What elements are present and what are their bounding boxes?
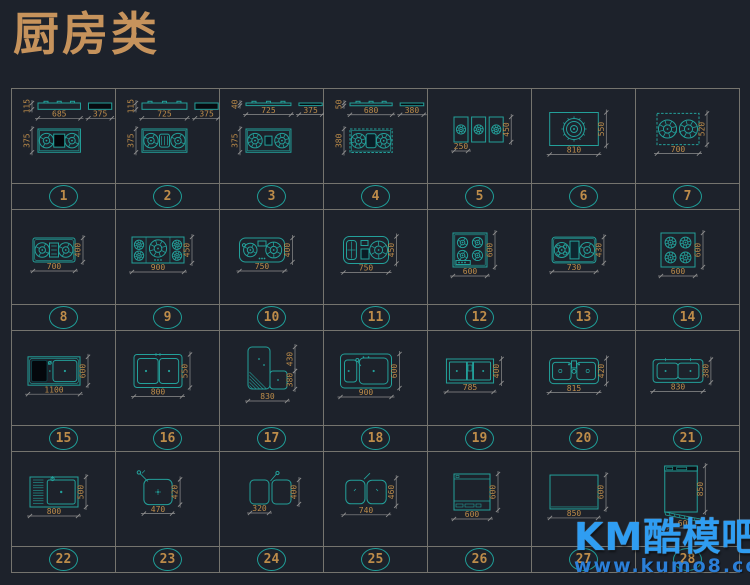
- number-strip: 15: [12, 425, 115, 451]
- svg-text:750: 750: [255, 262, 270, 271]
- svg-text:320: 320: [252, 504, 267, 513]
- catalog-cell-4: 506803803804: [324, 89, 428, 210]
- svg-text:800: 800: [151, 388, 166, 397]
- catalog-cell-11: 75045011: [324, 210, 428, 331]
- svg-text:550: 550: [181, 364, 190, 379]
- item-number-badge: 28: [673, 548, 702, 571]
- fixture-drawing-26: 600600: [428, 452, 532, 546]
- catalog-cell-20: 81542020: [532, 331, 636, 452]
- number-strip: 4: [324, 183, 427, 209]
- svg-text:600: 600: [79, 364, 88, 379]
- fixture-drawing-16: 800550: [116, 331, 220, 425]
- number-strip: 14: [636, 304, 739, 330]
- svg-text:380: 380: [405, 106, 420, 115]
- item-number-badge: 18: [361, 427, 390, 450]
- svg-text:725: 725: [157, 110, 172, 119]
- number-strip: 10: [220, 304, 323, 330]
- catalog-cell-16: 80055016: [116, 331, 220, 452]
- catalog-cell-14: 60060014: [636, 210, 740, 331]
- catalog-cell-23: 47042023: [116, 452, 220, 573]
- svg-text:400: 400: [492, 364, 501, 379]
- number-strip: 5: [428, 183, 531, 209]
- item-number-badge: 7: [673, 185, 702, 208]
- svg-text:750: 750: [359, 264, 374, 273]
- fixture-drawing-11: 750450: [324, 210, 428, 304]
- svg-text:700: 700: [671, 145, 686, 154]
- fixture-drawing-5: 250450: [428, 89, 532, 183]
- svg-text:740: 740: [359, 506, 374, 515]
- catalog-cell-12: 60060012: [428, 210, 532, 331]
- item-number-badge: 11: [361, 306, 390, 329]
- svg-text:830: 830: [671, 383, 686, 392]
- svg-text:550: 550: [597, 122, 606, 137]
- fixture-drawing-7: 700520: [636, 89, 740, 183]
- svg-text:450: 450: [502, 122, 511, 137]
- number-strip: 11: [324, 304, 427, 330]
- number-strip: 21: [636, 425, 739, 451]
- catalog-cell-5: 2504505: [428, 89, 532, 210]
- item-number-badge: 17: [257, 427, 286, 450]
- fixture-drawing-17: 830430380: [220, 331, 324, 425]
- number-strip: 8: [12, 304, 115, 330]
- number-strip: 1: [12, 183, 115, 209]
- fixture-drawing-28: 850600: [636, 452, 740, 546]
- number-strip: 20: [532, 425, 635, 451]
- catalog-cell-6: 8105506: [532, 89, 636, 210]
- fixture-drawing-13: 730430: [532, 210, 636, 304]
- fixture-drawing-10: 750400: [220, 210, 324, 304]
- svg-text:600: 600: [390, 364, 399, 379]
- item-number-badge: 16: [153, 427, 182, 450]
- svg-text:450: 450: [183, 243, 192, 258]
- svg-text:600: 600: [671, 267, 686, 276]
- catalog-cell-15: 110060015: [12, 331, 116, 452]
- catalog-cell-10: 75040010: [220, 210, 324, 331]
- svg-text:430: 430: [286, 352, 295, 367]
- svg-text:40: 40: [231, 99, 240, 109]
- svg-text:785: 785: [463, 383, 478, 392]
- svg-text:520: 520: [698, 122, 707, 137]
- number-strip: 18: [324, 425, 427, 451]
- svg-text:725: 725: [261, 106, 276, 115]
- svg-text:375: 375: [199, 110, 214, 119]
- svg-text:50: 50: [335, 99, 344, 109]
- item-number-badge: 8: [49, 306, 78, 329]
- number-strip: 2: [116, 183, 219, 209]
- number-strip: 28: [636, 546, 739, 572]
- item-number-badge: 26: [465, 548, 494, 571]
- svg-text:115: 115: [23, 99, 32, 114]
- item-number-badge: 23: [153, 548, 182, 571]
- fixture-drawing-18: 900600: [324, 331, 428, 425]
- fixture-drawing-24: 320400: [220, 452, 324, 546]
- fixture-drawing-27: 850600: [532, 452, 636, 546]
- catalog-cell-28: 85060028: [636, 452, 740, 573]
- svg-text:680: 680: [364, 106, 379, 115]
- number-strip: 16: [116, 425, 219, 451]
- fixture-drawing-21: 830380: [636, 331, 740, 425]
- svg-text:380: 380: [335, 133, 344, 148]
- svg-text:470: 470: [151, 505, 166, 514]
- catalog-cell-2: 1157253753752: [116, 89, 220, 210]
- svg-text:600: 600: [463, 267, 478, 276]
- svg-text:850: 850: [696, 482, 705, 497]
- fixture-drawing-19: 785400: [428, 331, 532, 425]
- number-strip: 23: [116, 546, 219, 572]
- svg-text:700: 700: [47, 262, 62, 271]
- catalog-cell-22: 80050022: [12, 452, 116, 573]
- number-strip: 17: [220, 425, 323, 451]
- fixture-drawing-23: 470420: [116, 452, 220, 546]
- number-strip: 22: [12, 546, 115, 572]
- fixture-drawing-20: 815420: [532, 331, 636, 425]
- svg-text:600: 600: [489, 485, 498, 500]
- catalog-grid: 1156853753751115725375375240725375375350…: [11, 88, 740, 573]
- svg-text:450: 450: [387, 243, 396, 258]
- svg-text:420: 420: [597, 364, 606, 379]
- fixture-drawing-1: 115685375375: [12, 89, 116, 183]
- svg-text:830: 830: [260, 392, 275, 401]
- item-number-badge: 1: [49, 185, 78, 208]
- number-strip: 9: [116, 304, 219, 330]
- svg-text:600: 600: [465, 510, 480, 519]
- svg-text:400: 400: [290, 485, 299, 500]
- fixture-drawing-14: 600600: [636, 210, 740, 304]
- item-number-badge: 19: [465, 427, 494, 450]
- number-strip: 24: [220, 546, 323, 572]
- item-number-badge: 5: [465, 185, 494, 208]
- svg-text:900: 900: [359, 388, 374, 397]
- catalog-cell-24: 32040024: [220, 452, 324, 573]
- fixture-drawing-22: 800500: [12, 452, 116, 546]
- catalog-cell-21: 83038021: [636, 331, 740, 452]
- item-number-badge: 15: [49, 427, 78, 450]
- catalog-cell-25: 74046025: [324, 452, 428, 573]
- fixture-drawing-4: 50680380380: [324, 89, 428, 183]
- item-number-badge: 27: [569, 548, 598, 571]
- catalog-cell-13: 73043013: [532, 210, 636, 331]
- number-strip: 26: [428, 546, 531, 572]
- item-number-badge: 10: [257, 306, 286, 329]
- svg-text:250: 250: [454, 142, 469, 151]
- item-number-badge: 14: [673, 306, 702, 329]
- fixture-drawing-12: 600600: [428, 210, 532, 304]
- svg-text:380: 380: [286, 373, 295, 388]
- svg-text:1100: 1100: [44, 385, 63, 394]
- svg-text:375: 375: [23, 133, 32, 148]
- catalog-cell-9: 9004509: [116, 210, 220, 331]
- catalog-cell-7: 7005207: [636, 89, 740, 210]
- catalog-cell-26: 60060026: [428, 452, 532, 573]
- catalog-cell-19: 78540019: [428, 331, 532, 452]
- svg-text:600: 600: [486, 243, 495, 258]
- number-strip: 6: [532, 183, 635, 209]
- fixture-drawing-15: 1100600: [12, 331, 116, 425]
- svg-text:815: 815: [567, 384, 582, 393]
- svg-text:375: 375: [127, 133, 136, 148]
- svg-text:800: 800: [47, 507, 62, 516]
- item-number-badge: 4: [361, 185, 390, 208]
- svg-text:375: 375: [93, 110, 108, 119]
- item-number-badge: 6: [569, 185, 598, 208]
- catalog-cell-17: 83043038017: [220, 331, 324, 452]
- item-number-badge: 22: [49, 548, 78, 571]
- svg-text:375: 375: [231, 133, 240, 148]
- item-number-badge: 2: [153, 185, 182, 208]
- svg-text:400: 400: [74, 243, 83, 258]
- number-strip: 13: [532, 304, 635, 330]
- number-strip: 7: [636, 183, 739, 209]
- fixture-drawing-25: 740460: [324, 452, 428, 546]
- cad-sheet: 厨房类 115685375375111572537537524072537537…: [0, 0, 750, 585]
- item-number-badge: 25: [361, 548, 390, 571]
- svg-text:600: 600: [597, 485, 606, 500]
- svg-text:850: 850: [567, 509, 582, 518]
- item-number-badge: 20: [569, 427, 598, 450]
- page-title: 厨房类: [13, 0, 160, 69]
- catalog-cell-27: 85060027: [532, 452, 636, 573]
- svg-text:810: 810: [567, 146, 582, 155]
- svg-text:600: 600: [678, 519, 693, 528]
- item-number-badge: 24: [257, 548, 286, 571]
- item-number-badge: 3: [257, 185, 286, 208]
- catalog-cell-1: 1156853753751: [12, 89, 116, 210]
- item-number-badge: 13: [569, 306, 598, 329]
- item-number-badge: 21: [673, 427, 702, 450]
- svg-text:500: 500: [77, 485, 86, 500]
- svg-text:900: 900: [151, 263, 166, 272]
- item-number-badge: 12: [465, 306, 494, 329]
- svg-text:430: 430: [595, 243, 604, 258]
- fixture-drawing-2: 115725375375: [116, 89, 220, 183]
- svg-text:375: 375: [303, 106, 318, 115]
- svg-text:460: 460: [387, 485, 396, 500]
- fixture-drawing-8: 700400: [12, 210, 116, 304]
- number-strip: 3: [220, 183, 323, 209]
- svg-text:400: 400: [283, 243, 292, 258]
- catalog-cell-8: 7004008: [12, 210, 116, 331]
- svg-text:420: 420: [171, 485, 180, 500]
- svg-text:380: 380: [702, 364, 711, 379]
- catalog-cell-3: 407253753753: [220, 89, 324, 210]
- number-strip: 19: [428, 425, 531, 451]
- svg-text:115: 115: [127, 99, 136, 114]
- number-strip: 25: [324, 546, 427, 572]
- svg-text:730: 730: [567, 263, 582, 272]
- fixture-drawing-3: 40725375375: [220, 89, 324, 183]
- number-strip: 12: [428, 304, 531, 330]
- fixture-drawing-6: 810550: [532, 89, 636, 183]
- svg-text:685: 685: [52, 110, 67, 119]
- item-number-badge: 9: [153, 306, 182, 329]
- svg-text:600: 600: [694, 243, 703, 258]
- fixture-drawing-9: 900450: [116, 210, 220, 304]
- catalog-cell-18: 90060018: [324, 331, 428, 452]
- number-strip: 27: [532, 546, 635, 572]
